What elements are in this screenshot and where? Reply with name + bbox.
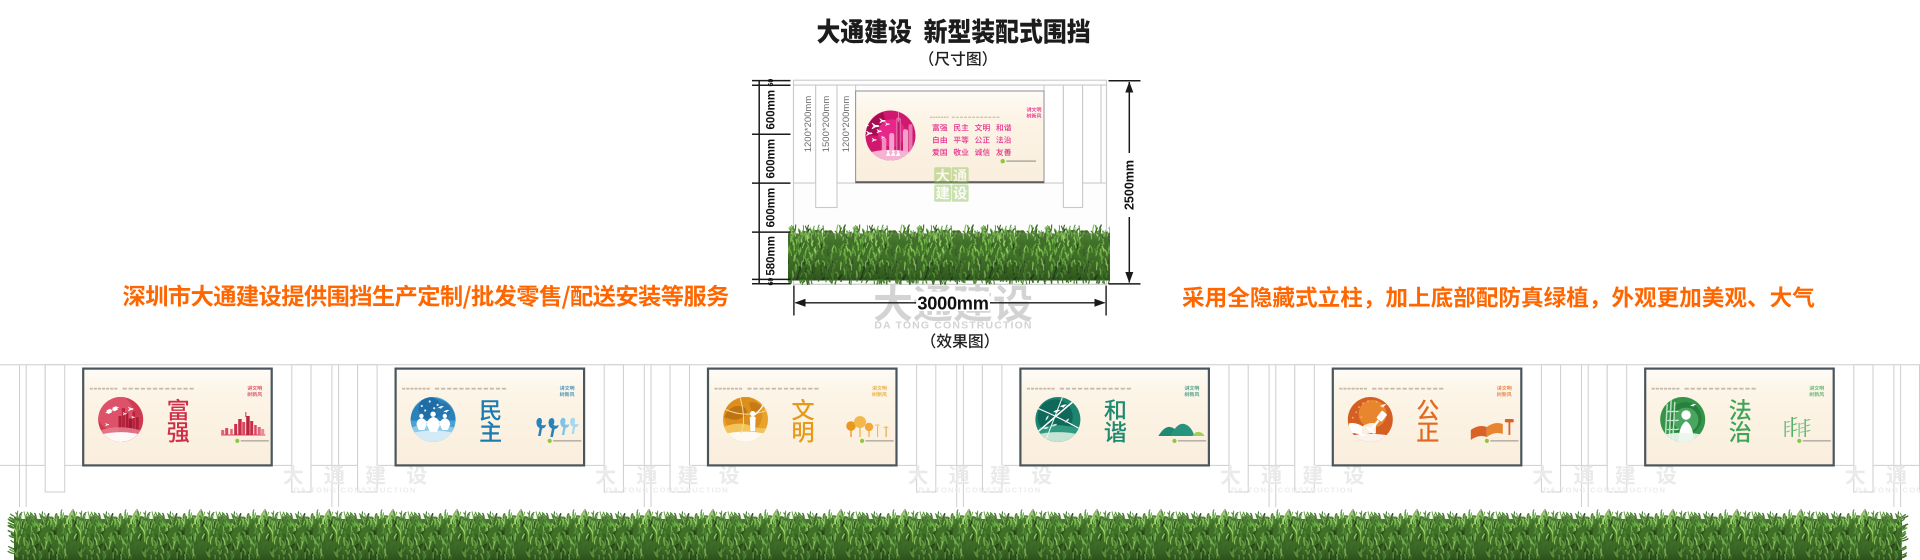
svg-text:DA TONG CONSTRUCTION: DA TONG CONSTRUCTION bbox=[1856, 486, 1920, 495]
svg-text:DA TONG CONSTRUCTION: DA TONG CONSTRUCTION bbox=[874, 319, 1032, 331]
svg-text:2500mm: 2500mm bbox=[1122, 160, 1136, 210]
svg-text:DA TONG CONSTRUCTION: DA TONG CONSTRUCTION bbox=[1543, 486, 1666, 495]
svg-text:60: 60 bbox=[768, 79, 775, 87]
svg-text:DA TONG CONSTRUCTION: DA TONG CONSTRUCTION bbox=[294, 486, 417, 495]
svg-text:600mm: 600mm bbox=[766, 90, 778, 130]
svg-text:DA TONG CONSTRUCTION: DA TONG CONSTRUCTION bbox=[919, 486, 1042, 495]
svg-text:1200*200mm: 1200*200mm bbox=[841, 96, 852, 153]
svg-text:DA TONG CONSTRUCTION: DA TONG CONSTRUCTION bbox=[606, 486, 729, 495]
svg-text:3000mm: 3000mm bbox=[917, 293, 988, 313]
svg-text:580mm: 580mm bbox=[766, 236, 778, 276]
svg-text:600mm: 600mm bbox=[766, 188, 778, 228]
svg-text:1500*200mm: 1500*200mm bbox=[821, 96, 832, 153]
svg-text:600mm: 600mm bbox=[766, 139, 778, 179]
svg-text:DA TONG CONSTRUCTION: DA TONG CONSTRUCTION bbox=[1231, 486, 1354, 495]
svg-text:1200*200mm: 1200*200mm bbox=[803, 96, 814, 153]
svg-text:60: 60 bbox=[768, 278, 775, 286]
